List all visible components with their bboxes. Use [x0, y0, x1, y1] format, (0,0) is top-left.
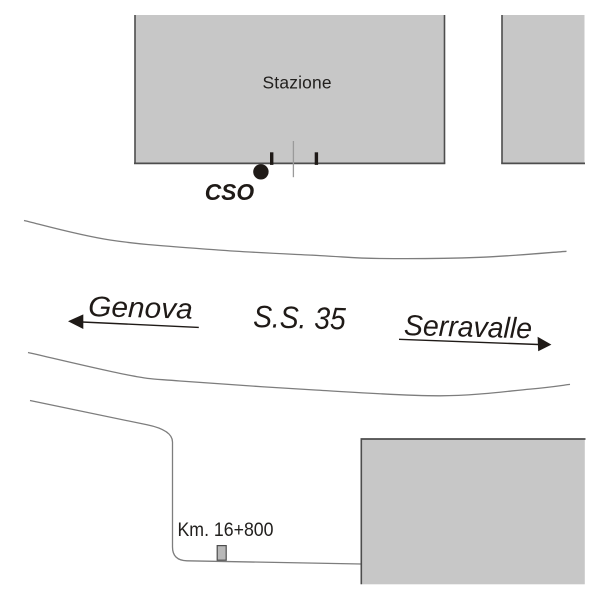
- svg-text:Stazione: Stazione: [263, 72, 332, 92]
- svg-text:S.S. 35: S.S. 35: [253, 299, 347, 336]
- svg-text:Km. 16+800: Km. 16+800: [178, 519, 274, 541]
- svg-text:CSO: CSO: [205, 179, 255, 205]
- svg-text:Genova: Genova: [88, 291, 193, 326]
